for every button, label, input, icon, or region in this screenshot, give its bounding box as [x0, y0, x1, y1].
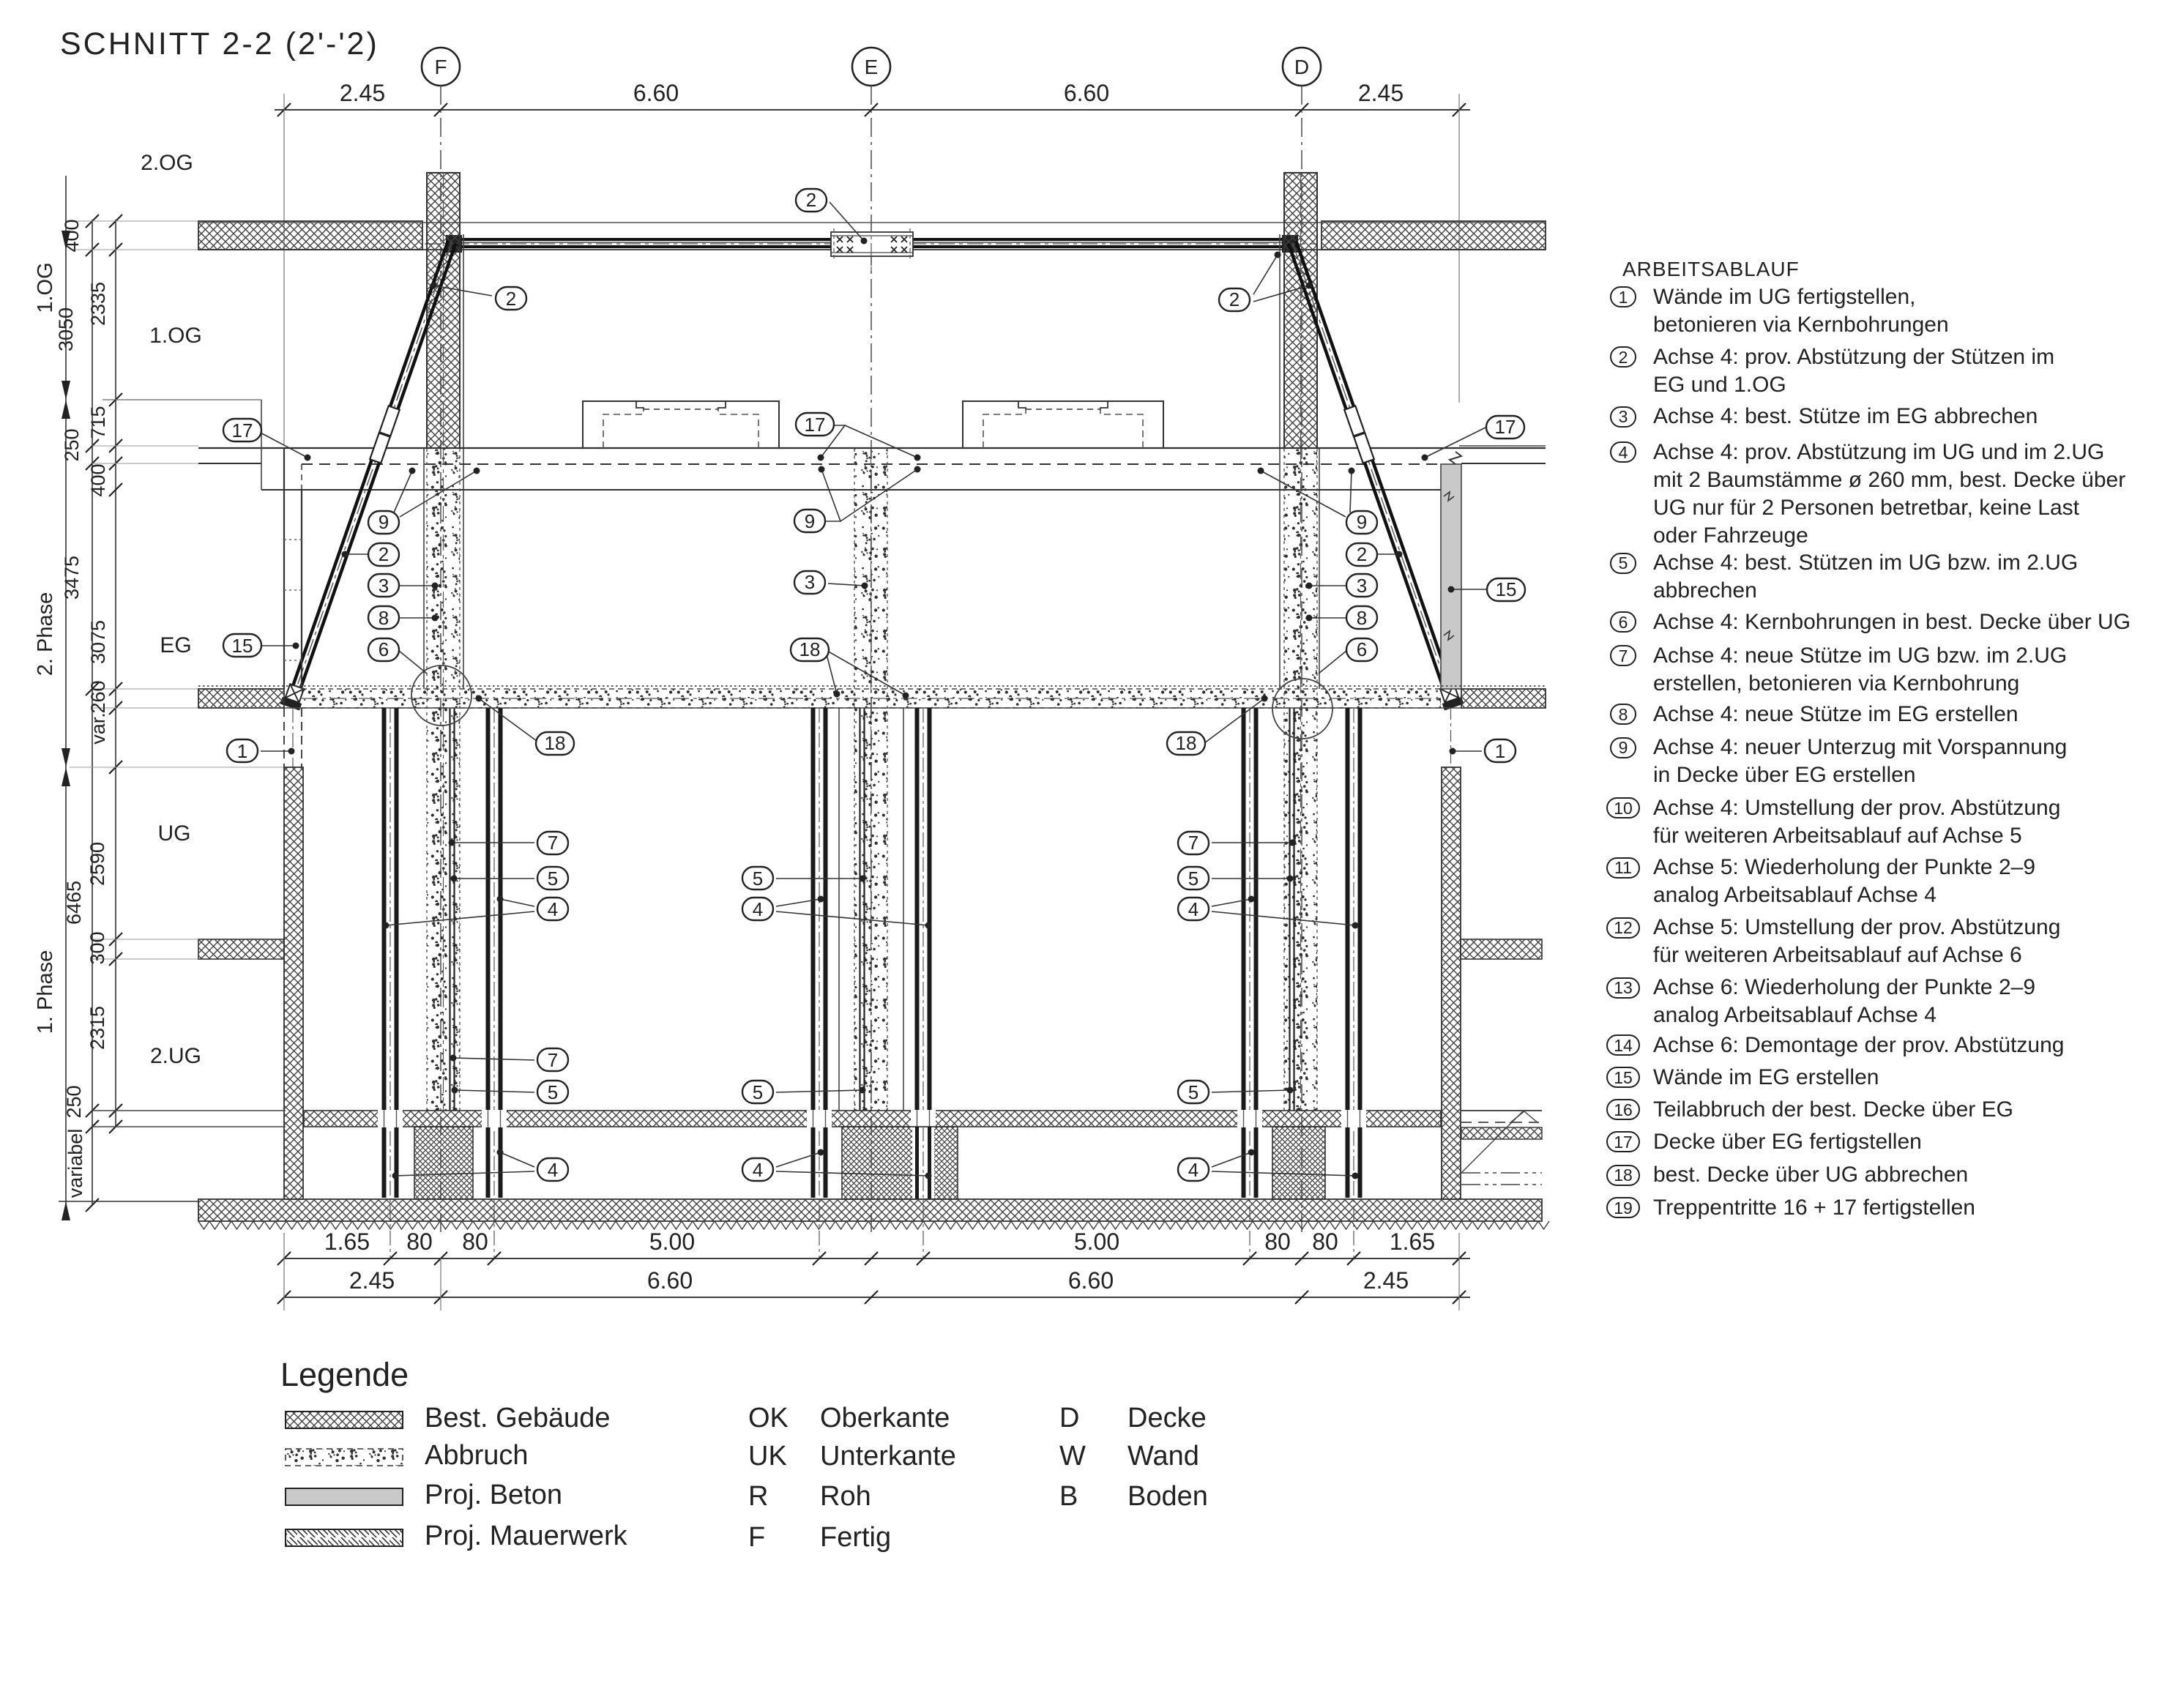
svg-text:UG nur für 2 Personen betretba: UG nur für 2 Personen betretbar, keine L…	[1653, 496, 2080, 520]
svg-text:6.60: 6.60	[1068, 1267, 1114, 1294]
svg-text:2.45: 2.45	[1363, 1267, 1409, 1294]
svg-text:5: 5	[1188, 868, 1199, 890]
svg-text:Achse 5: Wiederholung der Punk: Achse 5: Wiederholung der Punkte 2–9	[1653, 855, 2035, 879]
svg-text:8: 8	[1619, 705, 1628, 724]
svg-text:8: 8	[1357, 607, 1367, 629]
svg-text:4: 4	[1188, 898, 1199, 920]
svg-text:6: 6	[379, 638, 389, 660]
svg-text:B: B	[1059, 1481, 1078, 1512]
svg-text:5: 5	[753, 868, 763, 890]
svg-text:5.00: 5.00	[649, 1228, 695, 1255]
svg-text:2315: 2315	[86, 1006, 108, 1050]
svg-text:Achse 4: Kernbohrungen in best: Achse 4: Kernbohrungen in best. Decke üb…	[1653, 610, 2131, 634]
svg-text:abbrechen: abbrechen	[1653, 578, 1757, 603]
svg-text:Achse 4: best. Stützen im UG b: Achse 4: best. Stützen im UG bzw. im 2.U…	[1653, 551, 2078, 575]
svg-text:9: 9	[1619, 738, 1628, 757]
svg-text:300: 300	[86, 931, 108, 964]
svg-text:Decke über EG fertigstellen: Decke über EG fertigstellen	[1653, 1130, 1922, 1154]
svg-text:F: F	[434, 56, 447, 78]
svg-text:Decke: Decke	[1127, 1403, 1207, 1433]
svg-text:5: 5	[753, 1081, 763, 1103]
svg-text:6.60: 6.60	[1064, 80, 1109, 106]
svg-text:erstellen, betonieren via Kern: erstellen, betonieren via Kernbohrung	[1653, 671, 2019, 695]
svg-text:2: 2	[379, 543, 389, 565]
svg-text:Oberkante: Oberkante	[820, 1403, 950, 1433]
svg-text:4: 4	[753, 1159, 763, 1181]
svg-text:4: 4	[1619, 443, 1628, 462]
svg-text:18: 18	[1614, 1166, 1633, 1185]
svg-text:4: 4	[753, 898, 763, 920]
svg-text:715: 715	[87, 406, 109, 439]
svg-text:Best. Gebäude: Best. Gebäude	[425, 1403, 611, 1433]
svg-text:Boden: Boden	[1127, 1481, 1208, 1512]
svg-text:Proj. Beton: Proj. Beton	[425, 1480, 562, 1510]
svg-text:250: 250	[63, 1085, 85, 1118]
svg-text:var.: var.	[87, 712, 109, 745]
svg-text:ARBEITSABLAUF: ARBEITSABLAUF	[1622, 258, 1800, 280]
svg-text:Wand: Wand	[1127, 1441, 1199, 1472]
svg-text:2.OG: 2.OG	[141, 151, 193, 175]
svg-text:80: 80	[406, 1228, 433, 1255]
svg-text:oder Fahrzeuge: oder Fahrzeuge	[1653, 523, 1808, 548]
svg-text:3: 3	[1357, 575, 1367, 597]
svg-text:9: 9	[1357, 511, 1367, 533]
svg-text:18: 18	[1176, 732, 1197, 754]
svg-text:1.65: 1.65	[324, 1228, 370, 1255]
svg-text:9: 9	[379, 511, 389, 533]
svg-text:14: 14	[1614, 1036, 1633, 1055]
svg-text:250: 250	[61, 428, 83, 461]
svg-text:3: 3	[805, 571, 815, 593]
svg-text:6.60: 6.60	[647, 1267, 693, 1294]
svg-text:4: 4	[548, 1159, 558, 1181]
svg-text:Achse 6: Wiederholung der Punk: Achse 6: Wiederholung der Punkte 2–9	[1653, 975, 2035, 999]
svg-text:Fertig: Fertig	[820, 1522, 891, 1553]
svg-text:2335: 2335	[87, 282, 109, 326]
svg-text:4: 4	[548, 898, 558, 920]
svg-text:2: 2	[1229, 288, 1240, 310]
svg-text:Legende: Legende	[280, 1356, 409, 1393]
svg-text:80: 80	[1264, 1228, 1291, 1255]
svg-text:12: 12	[1614, 918, 1633, 937]
svg-text:1.OG: 1.OG	[149, 324, 202, 348]
svg-text:3475: 3475	[61, 556, 83, 600]
svg-text:6.60: 6.60	[633, 80, 679, 106]
svg-text:17: 17	[805, 414, 826, 436]
svg-text:80: 80	[462, 1228, 488, 1255]
svg-text:Achse 4: neue Stütze im EG ers: Achse 4: neue Stütze im EG erstellen	[1653, 702, 2019, 726]
svg-text:3075: 3075	[87, 620, 109, 664]
svg-text:W: W	[1059, 1441, 1086, 1472]
svg-text:19: 19	[1614, 1198, 1633, 1217]
svg-text:Achse 4: neue Stütze im UG bzw: Achse 4: neue Stütze im UG bzw. im 2.UG	[1653, 644, 2067, 668]
svg-text:1.65: 1.65	[1390, 1228, 1435, 1255]
svg-text:11: 11	[1614, 858, 1632, 877]
svg-text:2: 2	[1357, 543, 1367, 565]
svg-text:18: 18	[799, 638, 821, 660]
svg-text:betonieren via Kernbohrungen: betonieren via Kernbohrungen	[1653, 313, 1949, 337]
svg-text:F: F	[748, 1522, 765, 1553]
svg-text:1: 1	[1495, 740, 1505, 762]
svg-text:E: E	[865, 56, 879, 78]
svg-text:15: 15	[1496, 578, 1517, 600]
svg-text:3: 3	[1619, 407, 1628, 426]
svg-text:2. Phase: 2. Phase	[34, 592, 57, 676]
svg-text:13: 13	[1614, 978, 1633, 997]
svg-text:1: 1	[237, 740, 247, 762]
svg-text:7: 7	[1188, 832, 1199, 854]
svg-text:5: 5	[1619, 553, 1628, 573]
svg-text:analog Arbeitsablauf Achse 4: analog Arbeitsablauf Achse 4	[1653, 1003, 1937, 1027]
svg-text:Roh: Roh	[820, 1481, 871, 1512]
svg-text:2: 2	[1619, 348, 1628, 367]
svg-text:5: 5	[548, 1081, 558, 1103]
svg-text:OK: OK	[748, 1403, 789, 1433]
svg-text:Treppentritte 16 + 17 fertigst: Treppentritte 16 + 17 fertigstellen	[1653, 1196, 1975, 1220]
svg-text:1.OG: 1.OG	[34, 262, 57, 313]
svg-text:für weiteren Arbeitsablauf auf: für weiteren Arbeitsablauf auf Achse 6	[1653, 943, 2022, 967]
svg-text:variabel: variabel	[64, 1129, 86, 1198]
svg-text:10: 10	[1614, 799, 1633, 818]
svg-text:16: 16	[1614, 1100, 1633, 1119]
svg-text:D: D	[1059, 1403, 1079, 1433]
svg-text:Achse 4: prov. Abstützung im U: Achse 4: prov. Abstützung im UG und im 2…	[1653, 440, 2104, 464]
svg-text:80: 80	[1312, 1228, 1338, 1255]
svg-text:7: 7	[1619, 646, 1628, 665]
svg-text:EG und 1.OG: EG und 1.OG	[1653, 373, 1786, 397]
svg-text:6: 6	[1619, 613, 1628, 632]
svg-text:5: 5	[1188, 1081, 1199, 1103]
svg-text:1: 1	[1619, 288, 1628, 307]
svg-text:5.00: 5.00	[1074, 1228, 1119, 1255]
svg-text:SCHNITT 2-2 (2'-'2): SCHNITT 2-2 (2'-'2)	[60, 26, 379, 61]
svg-text:Abbruch: Abbruch	[425, 1440, 529, 1471]
svg-text:17: 17	[232, 419, 253, 441]
svg-text:400: 400	[87, 463, 109, 496]
svg-text:7: 7	[548, 1049, 558, 1071]
svg-text:Teilabbruch der best. Decke üb: Teilabbruch der best. Decke über EG	[1653, 1097, 2013, 1122]
svg-text:2.45: 2.45	[1358, 80, 1404, 106]
svg-text:9: 9	[805, 510, 815, 532]
svg-text:D: D	[1294, 56, 1309, 78]
svg-text:7: 7	[548, 832, 558, 854]
svg-text:2: 2	[506, 288, 516, 310]
svg-text:15: 15	[232, 635, 253, 657]
svg-text:Proj. Mauerwerk: Proj. Mauerwerk	[425, 1521, 628, 1551]
svg-text:mit 2 Baumstämme ø 260 mm, bes: mit 2 Baumstämme ø 260 mm, best. Decke ü…	[1653, 468, 2125, 492]
svg-text:18: 18	[545, 732, 566, 754]
svg-text:8: 8	[379, 607, 389, 629]
svg-text:Achse 4: prov. Abstützung der: Achse 4: prov. Abstützung der Stützen im	[1653, 345, 2054, 369]
svg-text:3: 3	[379, 575, 389, 597]
svg-text:260: 260	[87, 680, 109, 713]
svg-text:2.UG: 2.UG	[150, 1044, 201, 1068]
svg-text:15: 15	[1614, 1068, 1633, 1087]
svg-text:UG: UG	[158, 821, 191, 846]
svg-text:UK: UK	[748, 1441, 787, 1472]
svg-text:Achse 5: Umstellung der prov.: Achse 5: Umstellung der prov. Abstützung	[1653, 915, 2060, 939]
svg-text:6: 6	[1357, 638, 1367, 660]
svg-text:1. Phase: 1. Phase	[34, 950, 57, 1034]
svg-text:für weiteren Arbeitsablauf auf: für weiteren Arbeitsablauf auf Achse 5	[1653, 824, 2022, 848]
svg-text:Wände im UG fertigstellen,: Wände im UG fertigstellen,	[1653, 285, 1915, 309]
svg-text:Wände im EG erstellen: Wände im EG erstellen	[1653, 1065, 1879, 1089]
svg-text:Achse 4: best. Stütze im EG ab: Achse 4: best. Stütze im EG abbrechen	[1653, 404, 2038, 428]
svg-text:4: 4	[1188, 1159, 1199, 1181]
svg-text:Unterkante: Unterkante	[820, 1441, 956, 1472]
svg-text:in Decke über EG erstellen: in Decke über EG erstellen	[1653, 763, 1916, 787]
svg-text:EG: EG	[160, 633, 191, 657]
svg-text:best. Decke über UG abbrechen: best. Decke über UG abbrechen	[1653, 1163, 1968, 1187]
svg-text:2: 2	[806, 189, 816, 211]
svg-text:Achse 6: Demontage der prov. A: Achse 6: Demontage der prov. Abstützung	[1653, 1033, 2064, 1057]
svg-text:400: 400	[61, 219, 83, 252]
svg-text:Achse 4: neuer Unterzug mit Vo: Achse 4: neuer Unterzug mit Vorspannung	[1653, 735, 2067, 759]
svg-text:5: 5	[548, 868, 558, 890]
svg-text:3050: 3050	[55, 307, 77, 351]
svg-text:R: R	[748, 1481, 768, 1512]
svg-text:2590: 2590	[86, 842, 108, 886]
svg-text:2.45: 2.45	[349, 1267, 395, 1294]
svg-text:2.45: 2.45	[340, 80, 385, 106]
svg-text:Achse 4: Umstellung der prov.: Achse 4: Umstellung der prov. Abstützung	[1653, 796, 2060, 820]
svg-text:6465: 6465	[63, 881, 85, 925]
svg-text:17: 17	[1614, 1133, 1633, 1152]
svg-text:17: 17	[1495, 416, 1516, 438]
svg-text:analog Arbeitsablauf Achse 4: analog Arbeitsablauf Achse 4	[1653, 883, 1937, 907]
